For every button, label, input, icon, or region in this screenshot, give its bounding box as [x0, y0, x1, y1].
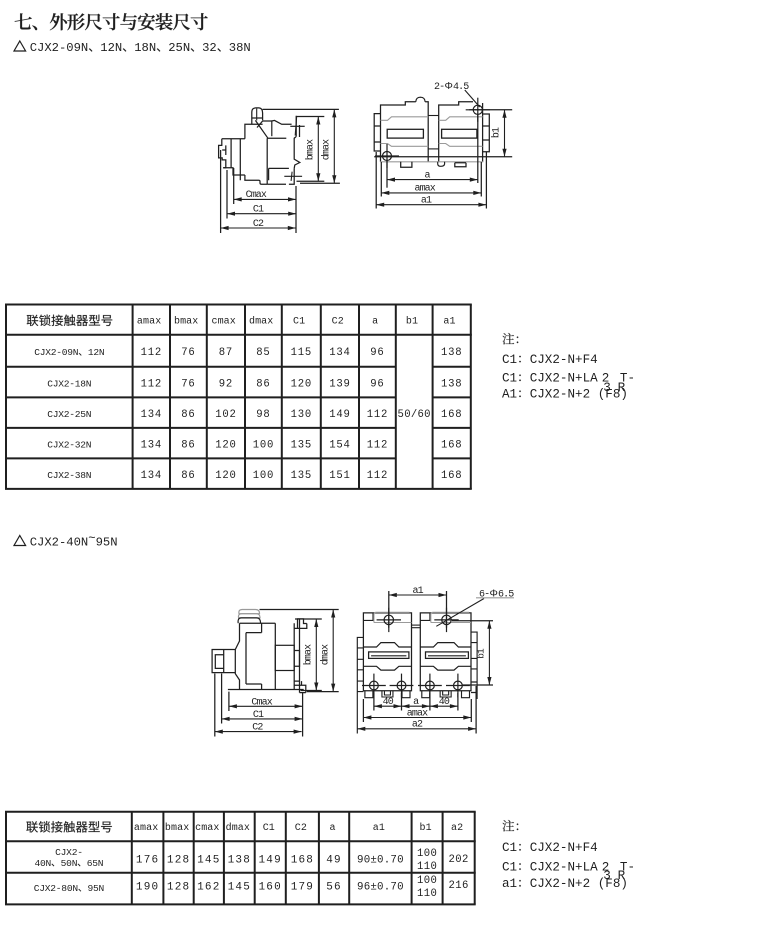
svg-text:CJX2-40N: CJX2-40N: [30, 535, 89, 549]
svg-text:40: 40: [383, 697, 394, 708]
svg-text:160: 160: [258, 881, 281, 893]
svg-text:149: 149: [329, 409, 350, 421]
svg-text:N: N: [86, 409, 92, 420]
svg-text:N: N: [86, 378, 92, 389]
svg-text:C1: C1: [502, 860, 517, 874]
svg-text:100: 100: [417, 875, 437, 887]
svg-text:C2: C2: [253, 219, 264, 230]
svg-text:C1: C1: [502, 353, 517, 367]
svg-text:a2: a2: [451, 823, 463, 834]
svg-text:a1: a1: [412, 586, 423, 597]
svg-text:102: 102: [215, 409, 236, 421]
svg-text:~: ~: [88, 531, 95, 545]
svg-text:a1: a1: [373, 823, 385, 834]
svg-text:dmax: dmax: [249, 315, 273, 327]
svg-text:CJX2-N+LA: CJX2-N+LA: [530, 372, 598, 386]
svg-text:dmax: dmax: [320, 644, 332, 665]
svg-text:CJX2-N+LA: CJX2-N+LA: [530, 860, 598, 874]
svg-text:b1: b1: [419, 822, 431, 834]
svg-text:C2: C2: [295, 823, 307, 834]
svg-text:92: 92: [219, 378, 233, 390]
svg-text:112: 112: [367, 470, 388, 482]
svg-text:110: 110: [417, 888, 437, 900]
svg-text:98: 98: [256, 409, 270, 421]
svg-text:CJX2-N+2 (F8): CJX2-N+2 (F8): [530, 388, 628, 402]
svg-text:176: 176: [136, 855, 159, 867]
svg-text:cmax: cmax: [195, 823, 219, 834]
svg-text:6-: 6-: [479, 589, 489, 600]
svg-text:149: 149: [258, 855, 281, 867]
svg-text:112: 112: [367, 409, 388, 421]
svg-text:134: 134: [329, 347, 350, 359]
svg-text:138: 138: [441, 378, 462, 390]
svg-text:cmax: cmax: [211, 316, 235, 327]
svg-text:154: 154: [329, 439, 350, 451]
svg-text:90±0.70: 90±0.70: [357, 855, 404, 867]
svg-text:2-: 2-: [434, 82, 444, 93]
svg-text:134: 134: [141, 409, 162, 421]
svg-text:bmax: bmax: [174, 315, 198, 327]
svg-text:179: 179: [291, 881, 314, 893]
svg-text:bmax: bmax: [303, 644, 315, 665]
svg-text:18N: 18N: [134, 41, 156, 55]
svg-text:138: 138: [441, 347, 462, 359]
svg-text:C1: C1: [253, 205, 264, 216]
svg-text:Φ: Φ: [445, 80, 453, 92]
svg-text:a1: a1: [443, 316, 455, 327]
svg-text:138: 138: [228, 855, 251, 867]
svg-text:dmax: dmax: [226, 822, 250, 834]
svg-text:N: N: [72, 858, 78, 869]
svg-text:120: 120: [215, 470, 236, 482]
svg-text:134: 134: [141, 470, 162, 482]
svg-text:120: 120: [291, 378, 312, 390]
svg-text:amax: amax: [407, 708, 428, 719]
svg-text:168: 168: [441, 409, 462, 421]
svg-text:4.5: 4.5: [453, 82, 469, 93]
svg-text:38N: 38N: [229, 41, 251, 55]
svg-text:110: 110: [417, 861, 437, 873]
svg-text:128: 128: [167, 855, 190, 867]
svg-text:-: -: [77, 847, 83, 858]
svg-text:100: 100: [253, 439, 274, 451]
svg-text:C1: C1: [253, 710, 264, 721]
svg-text:168: 168: [441, 470, 462, 482]
svg-text:a: a: [372, 316, 378, 327]
svg-text:145: 145: [197, 855, 220, 867]
svg-text:202: 202: [448, 854, 468, 866]
svg-text:216: 216: [448, 880, 468, 892]
svg-text:86: 86: [181, 470, 195, 482]
svg-text:145: 145: [228, 881, 251, 893]
svg-text:115: 115: [291, 347, 312, 359]
svg-text:86: 86: [181, 439, 195, 451]
svg-text:C2: C2: [332, 316, 344, 327]
svg-text:168: 168: [441, 439, 462, 451]
svg-text:56: 56: [326, 881, 342, 893]
svg-text:151: 151: [329, 470, 350, 482]
svg-text:49: 49: [326, 855, 342, 867]
svg-text:a: a: [413, 697, 419, 708]
svg-text:CJX2-09N: CJX2-09N: [30, 41, 89, 55]
svg-text:168: 168: [291, 855, 314, 867]
svg-text:C1: C1: [293, 316, 305, 327]
svg-text:N: N: [86, 470, 92, 481]
svg-text:CJX2-N+2 (F8): CJX2-N+2 (F8): [530, 877, 628, 891]
svg-text:a1: a1: [502, 877, 517, 891]
svg-text:N: N: [72, 883, 78, 894]
svg-text:a1: a1: [421, 196, 432, 207]
svg-text:112: 112: [367, 439, 388, 451]
svg-text:amax: amax: [134, 823, 158, 834]
svg-text:100: 100: [417, 848, 437, 860]
svg-text:N: N: [99, 347, 105, 358]
svg-text:135: 135: [291, 470, 312, 482]
svg-text:139: 139: [329, 378, 350, 390]
svg-text:a2: a2: [412, 720, 423, 731]
svg-text:96: 96: [370, 347, 384, 359]
svg-text:162: 162: [197, 881, 220, 893]
svg-text:25N: 25N: [168, 41, 190, 55]
svg-text:CJX2-N+F4: CJX2-N+F4: [530, 353, 598, 367]
svg-text:120: 120: [215, 439, 236, 451]
svg-text:bmax: bmax: [305, 139, 317, 160]
svg-text:bmax: bmax: [165, 822, 189, 834]
svg-text:32: 32: [202, 41, 217, 55]
svg-text:C1: C1: [263, 823, 275, 834]
svg-text:86: 86: [256, 378, 270, 390]
svg-text:190: 190: [136, 881, 159, 893]
svg-text:76: 76: [181, 347, 195, 359]
svg-text:N: N: [99, 883, 105, 894]
svg-text:135: 135: [291, 439, 312, 451]
svg-text:128: 128: [167, 881, 190, 893]
svg-text:C1: C1: [502, 841, 517, 855]
svg-text:N: N: [98, 858, 104, 869]
svg-text:76: 76: [181, 378, 195, 390]
svg-text:b1: b1: [491, 127, 503, 138]
svg-text:amax: amax: [414, 184, 435, 195]
svg-text:N: N: [46, 858, 52, 869]
svg-text:50/60: 50/60: [398, 409, 431, 421]
svg-text:6.5: 6.5: [498, 589, 514, 600]
svg-text:Cmax: Cmax: [246, 190, 267, 201]
svg-text:100: 100: [253, 470, 274, 482]
svg-text:amax: amax: [137, 316, 161, 327]
svg-text:130: 130: [291, 409, 312, 421]
svg-text:12N: 12N: [100, 41, 122, 55]
svg-text:N: N: [86, 439, 92, 450]
svg-text:85: 85: [256, 347, 270, 359]
svg-text:CJX2-N+F4: CJX2-N+F4: [530, 841, 598, 855]
svg-text:C2: C2: [252, 723, 263, 734]
svg-text:a: a: [424, 170, 430, 181]
svg-text:A1: A1: [502, 388, 517, 402]
svg-text:C1: C1: [502, 372, 517, 386]
svg-text:b1: b1: [476, 648, 487, 659]
svg-text:Cmax: Cmax: [251, 697, 272, 708]
svg-text:96: 96: [370, 378, 384, 390]
svg-text:112: 112: [141, 378, 162, 390]
svg-text:40: 40: [439, 697, 450, 708]
svg-text:a: a: [329, 823, 335, 834]
svg-text:96±0.70: 96±0.70: [357, 881, 404, 893]
svg-text:95N: 95N: [96, 535, 118, 549]
svg-text:87: 87: [219, 347, 233, 359]
svg-text:dmax: dmax: [321, 139, 333, 160]
svg-text:N: N: [73, 347, 79, 358]
svg-text:134: 134: [141, 439, 162, 451]
svg-text:86: 86: [181, 409, 195, 421]
svg-text:b1: b1: [406, 315, 418, 327]
svg-text:112: 112: [141, 347, 162, 359]
